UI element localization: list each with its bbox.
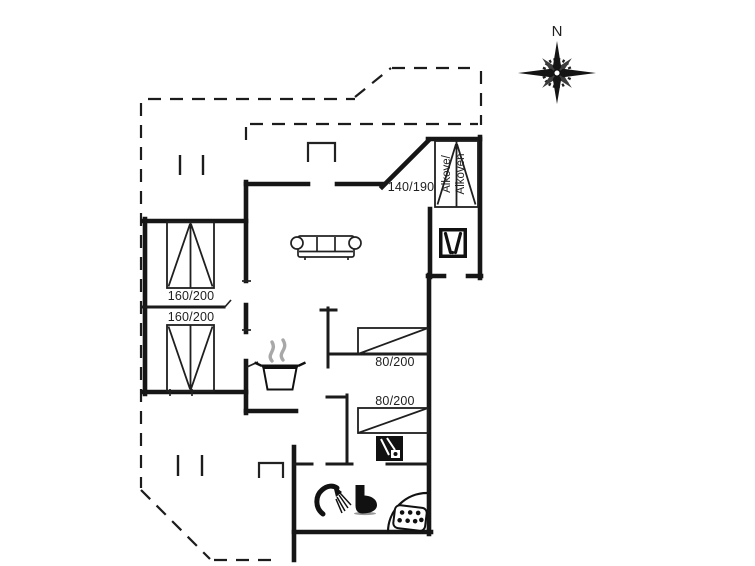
sofa-arm-left — [291, 237, 303, 249]
tv-detail — [451, 251, 454, 254]
recess-outline-entry — [259, 463, 283, 478]
pot-body — [264, 368, 297, 390]
toilet-icon — [354, 485, 377, 515]
label-bed-80-200-bottom: 80/200 — [375, 394, 414, 408]
bed-single-top — [358, 328, 428, 354]
steam-icon — [270, 340, 285, 361]
bed-diagonal — [358, 328, 428, 354]
terrace-outline-diagonal-bottom — [141, 490, 210, 559]
label-bed-160-200-top: 160/200 — [168, 289, 215, 303]
compass-north-label: N — [552, 23, 563, 40]
toilet-silhouette — [356, 485, 378, 514]
cooking-pot-steam-icon — [255, 340, 306, 390]
floor-plan-page: N 160/200 160/200 140/190 80/200 80/200 — [0, 0, 755, 566]
bed-size-labels: 160/200 160/200 140/190 80/200 80/200 Al… — [168, 154, 467, 408]
compass-rose-icon: N — [518, 23, 596, 104]
shower-hose — [317, 486, 337, 514]
appliance-knob — [394, 452, 398, 456]
bed-lines — [169, 325, 213, 391]
sofa-arm-right — [349, 237, 361, 249]
label-alcove-line1: Alkove/ — [441, 154, 453, 193]
bed-lines — [169, 222, 213, 288]
bed-single-bottom — [358, 408, 428, 433]
tv-icon — [439, 228, 467, 258]
washing-machine-icon — [376, 436, 403, 461]
label-bed-160-200-bottom: 160/200 — [168, 310, 215, 324]
bed-double-top — [167, 222, 214, 288]
label-bed-140-190: 140/190 — [388, 180, 435, 194]
terrace-outline-diagonal-top — [355, 68, 391, 97]
sofa-icon — [291, 236, 361, 260]
label-bed-80-200-top: 80/200 — [375, 355, 414, 369]
recess-outline-top — [308, 143, 335, 162]
door-swing-tick — [224, 300, 231, 308]
label-alcove-line2: Alkoven — [455, 154, 467, 195]
bed-diagonal — [358, 408, 428, 433]
bed-double-bottom — [167, 325, 214, 391]
wall-bedroom-right-top — [321, 308, 336, 367]
shower-spray — [336, 493, 351, 513]
wall-bedroom-right-bottom — [327, 395, 347, 464]
compass-hub — [554, 70, 560, 76]
corner-sink-icon — [388, 493, 427, 532]
shower-icon — [317, 485, 351, 514]
exterior-walls — [143, 137, 481, 560]
floor-plan-drawing: N 160/200 160/200 140/190 80/200 80/200 — [0, 0, 755, 566]
sofa-body — [298, 236, 354, 257]
